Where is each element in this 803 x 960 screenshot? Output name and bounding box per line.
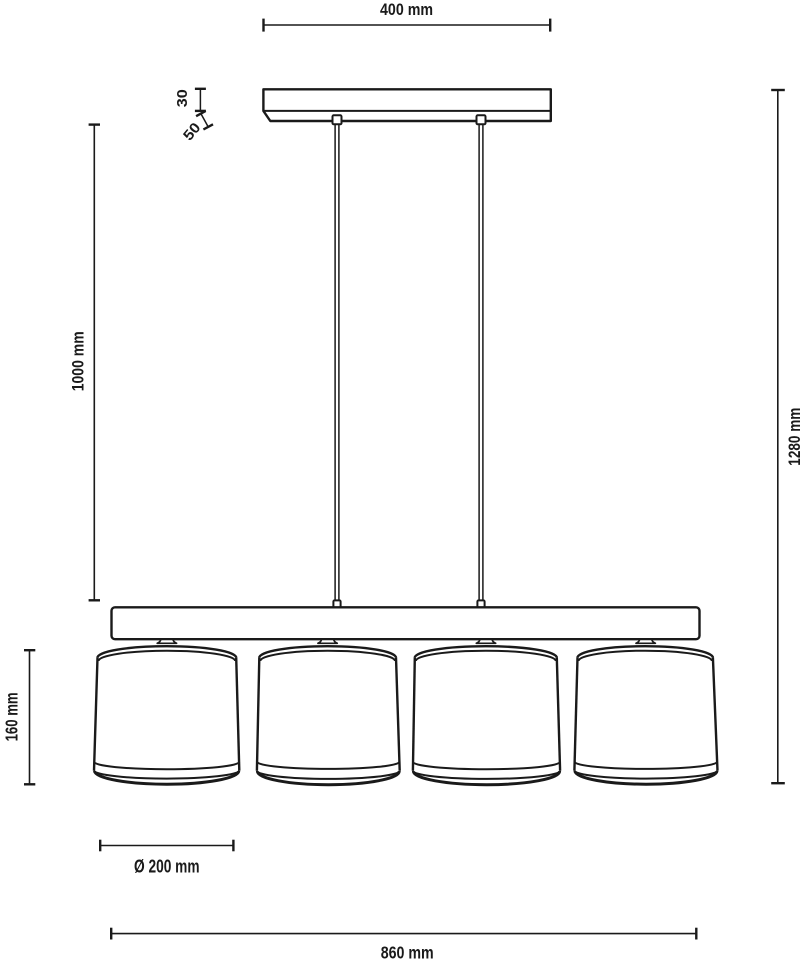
svg-text:860 mm: 860 mm: [381, 942, 434, 960]
svg-text:30: 30: [175, 89, 191, 107]
svg-text:Ø 200 mm: Ø 200 mm: [134, 856, 200, 876]
svg-text:160 mm: 160 mm: [2, 692, 22, 741]
svg-text:1280 mm: 1280 mm: [785, 408, 803, 466]
svg-text:400 mm: 400 mm: [380, 0, 433, 19]
svg-text:1000 mm: 1000 mm: [69, 331, 88, 391]
